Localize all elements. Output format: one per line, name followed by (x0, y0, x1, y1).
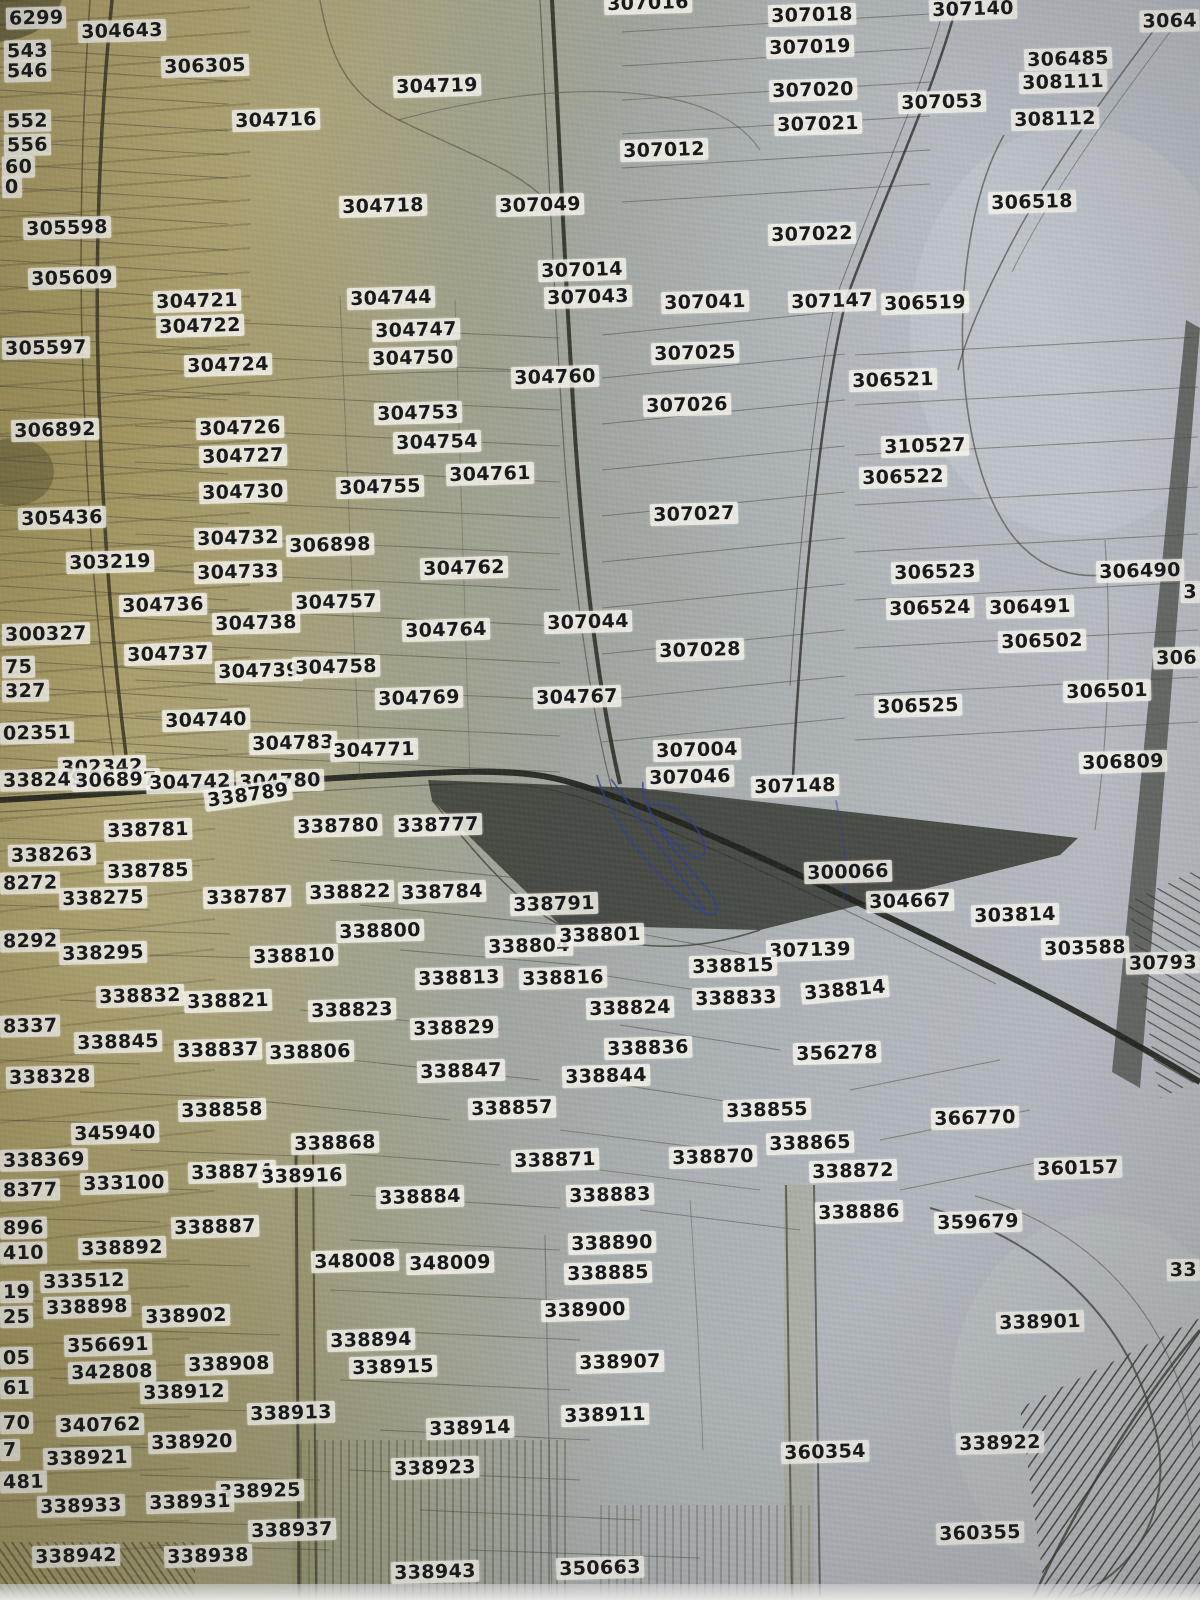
parcel-label: 75 (2, 656, 36, 679)
parcel-label: 338815 (689, 954, 777, 978)
parcel-label: 356278 (793, 1041, 881, 1065)
parcel-label: 338870 (669, 1145, 757, 1169)
parcel-labels-layer: 6299304643307016307018307140306454354630… (0, 0, 1200, 1600)
parcel-label: 333512 (40, 1269, 128, 1293)
parcel-label: 306491 (986, 595, 1074, 619)
parcel-label: 304755 (336, 475, 424, 499)
parcel-label: 7 (0, 1439, 20, 1461)
parcel-label: 304757 (292, 590, 380, 614)
parcel-label: 345940 (71, 1121, 159, 1145)
parcel-label: 304739 (215, 659, 303, 683)
parcel-label: 304758 (292, 655, 380, 679)
parcel-label: 338865 (766, 1131, 854, 1155)
parcel-label: 338787 (203, 885, 291, 909)
parcel-label: 556 (4, 134, 51, 157)
parcel-label: 304737 (124, 642, 212, 666)
parcel-label: 304761 (446, 462, 534, 486)
parcel-label: 338923 (391, 1456, 479, 1480)
parcel-label: 305609 (28, 266, 116, 290)
parcel-label: 338810 (250, 944, 338, 968)
parcel-label: 338943 (391, 1560, 479, 1584)
parcel-label: 338824 (586, 996, 674, 1020)
photo-bottom-edge (0, 1584, 1200, 1600)
parcel-label: 304762 (420, 556, 508, 580)
parcel-label: 338836 (604, 1036, 692, 1060)
parcel-label: 307148 (751, 774, 839, 798)
parcel-label: 300327 (2, 622, 90, 646)
parcel-label: 338931 (146, 1490, 234, 1514)
parcel-label: 304667 (866, 889, 954, 913)
parcel-label: 307140 (929, 0, 1017, 21)
parcel-label: 360354 (781, 1440, 869, 1464)
parcel-label: 304783 (249, 731, 337, 755)
parcel-label: 338890 (568, 1231, 656, 1255)
parcel-label: 303588 (1041, 936, 1129, 960)
parcel-label: 304736 (119, 593, 207, 617)
parcel-label: 304753 (374, 401, 462, 425)
parcel-label: 356691 (64, 1333, 152, 1357)
parcel-label: 8272 (0, 871, 61, 894)
parcel-label: 338916 (258, 1164, 346, 1188)
parcel-label: 307025 (651, 341, 739, 365)
parcel-label: 338937 (248, 1518, 336, 1542)
parcel-label: 360355 (936, 1521, 1024, 1545)
parcel-label: 304750 (369, 346, 457, 370)
parcel-label: 338901 (996, 1310, 1084, 1334)
parcel-label: 307043 (544, 285, 632, 309)
parcel-label: 306305 (161, 54, 249, 78)
parcel-label: 305598 (23, 216, 111, 240)
parcel-label: 306809 (1079, 750, 1167, 774)
parcel-label: 338816 (519, 966, 607, 990)
parcel-label: 307012 (620, 138, 708, 162)
parcel-label: 338784 (398, 880, 486, 904)
parcel-label: 338822 (306, 880, 394, 904)
parcel-label: 308111 (1019, 70, 1107, 94)
parcel-label: 338328 (6, 1065, 94, 1089)
parcel-label: 307041 (661, 290, 749, 314)
parcel-label: 306 (1153, 647, 1200, 670)
parcel-label: 303814 (971, 903, 1059, 927)
parcel-label: 306502 (998, 629, 1086, 653)
parcel-label: 307014 (538, 258, 626, 282)
parcel-label: 338868 (291, 1131, 379, 1155)
parcel-label: 342808 (68, 1360, 156, 1384)
parcel-label: 350663 (556, 1556, 644, 1580)
parcel-label: 6299 (6, 6, 67, 29)
parcel-label: 338883 (566, 1183, 654, 1207)
parcel-label: 338813 (415, 966, 503, 990)
parcel-label: 304726 (196, 416, 284, 440)
parcel-label: 306501 (1063, 679, 1151, 703)
parcel-label: 307026 (643, 393, 731, 417)
parcel-label: 338915 (349, 1355, 437, 1379)
parcel-label: 304718 (339, 194, 427, 218)
parcel-label: 338791 (510, 892, 598, 916)
parcel-label: 338885 (564, 1261, 652, 1285)
parcel-label: 304730 (199, 480, 287, 504)
parcel-label: 338898 (43, 1295, 131, 1319)
parcel-label: 307053 (898, 90, 986, 114)
parcel-label: 310527 (881, 434, 969, 458)
parcel-label: 304754 (393, 430, 481, 454)
parcel-label: 338907 (576, 1350, 664, 1374)
parcel-label: 338369 (0, 1148, 88, 1172)
parcel-label: 304732 (194, 526, 282, 550)
parcel-label: 70 (0, 1412, 33, 1435)
parcel-label: 338855 (723, 1098, 811, 1122)
parcel-label: 306523 (891, 560, 979, 584)
parcel-label: 338857 (468, 1096, 556, 1120)
parcel-label: 304747 (372, 318, 460, 342)
parcel-label: 304760 (511, 365, 599, 389)
parcel-label: 338785 (104, 859, 192, 883)
parcel-label: 338844 (562, 1064, 650, 1088)
parcel-label: 304716 (232, 108, 320, 132)
parcel-label: 306490 (1096, 559, 1184, 583)
parcel-label: 304764 (402, 618, 490, 642)
parcel-label: 338833 (692, 986, 780, 1010)
parcel-label: 307021 (774, 112, 862, 136)
parcel-label: 410 (0, 1242, 47, 1265)
parcel-label: 481 (0, 1471, 47, 1494)
parcel-label: 338887 (171, 1215, 259, 1239)
parcel-label: 307027 (650, 502, 738, 526)
parcel-label: 338845 (74, 1030, 162, 1054)
parcel-label: 307020 (769, 78, 857, 102)
parcel-label: 552 (4, 110, 51, 133)
parcel-label: 338922 (956, 1431, 1044, 1455)
parcel-label: 304744 (347, 286, 435, 310)
parcel-label: 338912 (140, 1380, 228, 1404)
parcel-label: 3 (1180, 581, 1200, 603)
parcel-label: 05 (0, 1347, 33, 1370)
parcel-label: 304721 (153, 289, 241, 313)
parcel-label: 338800 (336, 919, 424, 943)
parcel-label: 338780 (294, 814, 382, 838)
parcel-label: 307004 (653, 738, 741, 762)
parcel-label: 306524 (886, 596, 974, 620)
parcel-label: 304769 (375, 686, 463, 710)
parcel-label: 348009 (406, 1251, 494, 1275)
parcel-label: 300066 (804, 860, 892, 884)
parcel-label: 338913 (247, 1401, 335, 1425)
parcel-label: 25 (0, 1306, 33, 1329)
cadastral-map-photo: 6299304643307016307018307140306454354630… (0, 0, 1200, 1600)
parcel-label: 338908 (185, 1352, 273, 1376)
parcel-label: 338806 (266, 1040, 354, 1064)
parcel-label: 896 (0, 1217, 47, 1240)
parcel-label: 307049 (496, 193, 584, 217)
parcel-label: 307018 (768, 3, 856, 27)
parcel-label: 304727 (199, 444, 287, 468)
parcel-label: 327 (2, 680, 49, 703)
parcel-label: 304738 (212, 611, 300, 635)
parcel-label: 305436 (18, 506, 106, 530)
parcel-label: 338837 (174, 1038, 262, 1062)
parcel-label: 307044 (544, 610, 632, 634)
parcel-label: 303219 (66, 550, 154, 574)
parcel-label: 333100 (80, 1171, 168, 1195)
parcel-label: 0 (2, 176, 22, 198)
parcel-label: 338832 (96, 984, 184, 1008)
parcel-label: 338884 (376, 1185, 464, 1209)
parcel-label: 338938 (164, 1544, 252, 1568)
parcel-label: 338892 (78, 1236, 166, 1260)
parcel-label: 338814 (800, 975, 889, 1005)
parcel-label: 338911 (561, 1403, 649, 1427)
parcel-label: 306892 (11, 418, 99, 442)
parcel-label: 8292 (0, 929, 61, 952)
parcel-label: 338921 (43, 1446, 131, 1470)
parcel-label: 304733 (194, 560, 282, 584)
parcel-label: 546 (4, 60, 51, 83)
parcel-label: 338858 (178, 1098, 266, 1122)
parcel-label: 338829 (410, 1016, 498, 1040)
parcel-label: 338871 (511, 1148, 599, 1172)
parcel-label: 307022 (768, 222, 856, 246)
parcel-label: 307139 (766, 938, 854, 962)
parcel-label: 338847 (417, 1059, 505, 1083)
parcel-label: 338295 (59, 941, 147, 965)
parcel-label: 306518 (988, 190, 1076, 214)
parcel-label: 307046 (646, 765, 734, 789)
parcel-label: 307019 (766, 35, 854, 59)
parcel-label: 338942 (32, 1544, 120, 1568)
parcel-label: 8377 (0, 1178, 61, 1201)
parcel-label: 306521 (849, 368, 937, 392)
parcel-label: 366770 (931, 1106, 1019, 1130)
parcel-label: 338900 (541, 1298, 629, 1322)
parcel-label: 306898 (286, 533, 374, 557)
parcel-label: 304643 (78, 19, 166, 43)
parcel-label: 338823 (308, 998, 396, 1022)
parcel-label: 338886 (815, 1200, 903, 1224)
parcel-label: 307028 (656, 638, 744, 662)
parcel-label: 338801 (556, 923, 644, 947)
parcel-label: 338263 (8, 843, 96, 867)
parcel-label: 338781 (104, 818, 192, 842)
parcel-label: 306525 (874, 694, 962, 718)
parcel-label: 305597 (2, 336, 90, 360)
parcel-label: 306519 (881, 291, 969, 315)
parcel-label: 307147 (788, 289, 876, 313)
parcel-label: 304722 (156, 314, 244, 338)
parcel-label: 360157 (1034, 1156, 1122, 1180)
parcel-label: 3064 (1139, 9, 1200, 32)
parcel-label: 338902 (142, 1304, 230, 1328)
parcel-label: 338933 (37, 1494, 125, 1518)
parcel-label: 61 (0, 1377, 33, 1400)
parcel-label: 304771 (330, 738, 418, 762)
parcel-label: 30793 (1126, 951, 1200, 975)
parcel-label: 338914 (426, 1416, 514, 1440)
parcel-label: 304767 (533, 685, 621, 709)
parcel-label: 340762 (56, 1413, 144, 1437)
parcel-label: 308112 (1011, 107, 1099, 131)
parcel-label: 304724 (184, 353, 272, 377)
parcel-label: 8337 (0, 1014, 61, 1037)
parcel-label: 338275 (59, 886, 147, 910)
parcel-label: 19 (0, 1281, 33, 1304)
parcel-label: 304719 (393, 74, 481, 98)
parcel-label: 338872 (809, 1159, 897, 1183)
parcel-label: 348008 (311, 1249, 399, 1273)
parcel-label: 338894 (327, 1328, 415, 1352)
parcel-label: 304740 (162, 708, 250, 732)
parcel-label: 338821 (184, 989, 272, 1013)
parcel-label: 338920 (148, 1430, 236, 1454)
parcel-label: 306522 (859, 465, 947, 489)
parcel-label: 338777 (394, 813, 482, 837)
parcel-label: 307016 (604, 0, 692, 15)
parcel-label: 359679 (934, 1210, 1022, 1234)
parcel-label: 306485 (1024, 47, 1112, 71)
parcel-label: 33 (1167, 1259, 1200, 1282)
parcel-label: 02351 (0, 721, 74, 745)
